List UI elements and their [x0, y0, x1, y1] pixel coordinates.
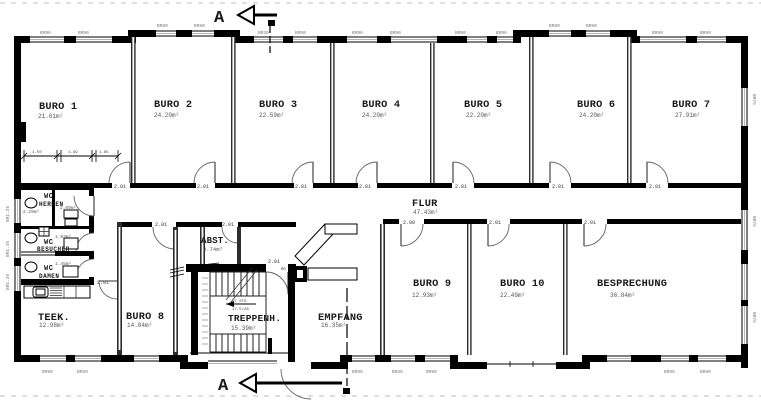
- svg-text:BURO 4: BURO 4: [362, 99, 400, 111]
- svg-text:BR30: BR30: [392, 369, 403, 375]
- svg-text:BR90: BR90: [78, 30, 89, 36]
- svg-text:1.93m²: 1.93m²: [55, 234, 72, 240]
- svg-text:BURO 9: BURO 9: [413, 278, 451, 290]
- svg-text:24.20m²: 24.20m²: [154, 112, 179, 119]
- svg-text:BR90: BR90: [352, 369, 363, 375]
- svg-text:22.59m²: 22.59m²: [259, 112, 284, 119]
- svg-text:1.99: 1.99: [68, 151, 78, 155]
- svg-text:2.01: 2.01: [97, 280, 109, 286]
- svg-text:BR90: BR90: [426, 369, 437, 375]
- svg-text:BESPRECHUNG: BESPRECHUNG: [597, 278, 667, 290]
- svg-text:1.50: 1.50: [32, 151, 42, 155]
- svg-text:2.01: 2.01: [114, 184, 126, 190]
- svg-text:2.01: 2.01: [359, 184, 371, 190]
- svg-text:BURO 3: BURO 3: [259, 99, 297, 111]
- svg-text:BR75: BR75: [751, 94, 757, 105]
- svg-text:1.85: 1.85: [99, 151, 109, 155]
- svg-text:BR1.35: BR1.35: [5, 273, 11, 290]
- svg-text:2.01: 2.01: [222, 222, 234, 228]
- svg-text:2.01: 2.01: [197, 184, 209, 190]
- svg-text:BURO 6: BURO 6: [577, 99, 615, 111]
- svg-text:BR90: BR90: [586, 23, 597, 29]
- svg-text:2.29m²: 2.29m²: [23, 209, 40, 215]
- svg-text:BR90: BR90: [295, 30, 306, 36]
- svg-text:TREPPENH.: TREPPENH.: [228, 313, 281, 324]
- svg-text:BURO 2: BURO 2: [154, 99, 192, 111]
- svg-text:BR30: BR30: [258, 30, 269, 36]
- svg-text:BURO 5: BURO 5: [464, 99, 502, 111]
- svg-text:BR90: BR90: [652, 30, 663, 36]
- svg-text:2.01: 2.01: [552, 184, 564, 190]
- svg-text:17.5/28: 17.5/28: [232, 307, 249, 312]
- svg-text:BESUCHER: BESUCHER: [37, 246, 70, 253]
- svg-text:47.43m²: 47.43m²: [413, 209, 438, 216]
- svg-text:BR90: BR90: [455, 30, 466, 36]
- svg-text:BR90: BR90: [700, 369, 711, 375]
- svg-text:BR90: BR90: [42, 369, 53, 375]
- svg-text:BR75: BR75: [751, 216, 757, 227]
- svg-text:2.09m²: 2.09m²: [60, 205, 77, 211]
- svg-text:BR75: BR75: [751, 312, 757, 323]
- svg-text:ABST.: ABST.: [201, 236, 229, 246]
- svg-text:27.91m²: 27.91m²: [675, 112, 700, 119]
- svg-text:RD: RD: [281, 268, 286, 272]
- svg-text:24.20m²: 24.20m²: [579, 112, 604, 119]
- svg-text:17 STG: 17 STG: [232, 300, 247, 304]
- svg-text:2.01: 2.01: [489, 220, 501, 226]
- svg-text:BR90: BR90: [549, 23, 560, 29]
- svg-text:BR1.35: BR1.35: [5, 240, 11, 257]
- svg-text:BR90: BR90: [77, 369, 88, 375]
- svg-text:BR90: BR90: [157, 23, 168, 29]
- svg-text:14.04m²: 14.04m²: [127, 322, 152, 329]
- svg-text:2.01: 2.01: [649, 184, 661, 190]
- svg-text:2.01: 2.01: [295, 184, 307, 190]
- svg-text:DAMEN: DAMEN: [39, 273, 60, 280]
- svg-text:2.00: 2.00: [403, 220, 415, 226]
- svg-text:BR90: BR90: [390, 30, 401, 36]
- svg-text:WC: WC: [44, 193, 53, 201]
- svg-text:A: A: [214, 9, 225, 28]
- svg-text:2.01: 2.01: [584, 220, 596, 226]
- svg-text:12.98m²: 12.98m²: [39, 322, 64, 329]
- svg-text:BR90: BR90: [40, 30, 51, 36]
- svg-text:BR90: BR90: [664, 369, 675, 375]
- svg-text:BR90: BR90: [700, 30, 711, 36]
- svg-text:BR90: BR90: [496, 30, 507, 36]
- svg-text:BR1.35: BR1.35: [5, 205, 11, 222]
- svg-text:21.61m²: 21.61m²: [38, 113, 63, 120]
- svg-text:A: A: [218, 377, 229, 396]
- svg-text:22.49m²: 22.49m²: [500, 292, 525, 299]
- svg-text:2.01: 2.01: [155, 222, 167, 228]
- svg-text:15.39m²: 15.39m²: [231, 325, 256, 332]
- svg-text:BURO 7: BURO 7: [672, 99, 710, 111]
- svg-text:2.01: 2.01: [268, 259, 280, 265]
- svg-text:22.20m²: 22.20m²: [466, 112, 491, 119]
- svg-text:1.45m²: 1.45m²: [55, 261, 72, 267]
- svg-text:BURO 10: BURO 10: [500, 278, 545, 290]
- svg-text:12.93m²: 12.93m²: [412, 292, 437, 299]
- svg-text:24.20m²: 24.20m²: [362, 112, 387, 119]
- svg-text:WC: WC: [44, 265, 53, 273]
- svg-text:BURO 1: BURO 1: [39, 101, 77, 113]
- svg-text:BR90: BR90: [194, 23, 205, 29]
- svg-text:36.84m²: 36.84m²: [610, 292, 635, 299]
- svg-text:3.74m²: 3.74m²: [203, 246, 223, 253]
- svg-text:2.01: 2.01: [455, 184, 467, 190]
- svg-text:16.35m²: 16.35m²: [321, 322, 346, 329]
- svg-text:BR90: BR90: [352, 30, 363, 36]
